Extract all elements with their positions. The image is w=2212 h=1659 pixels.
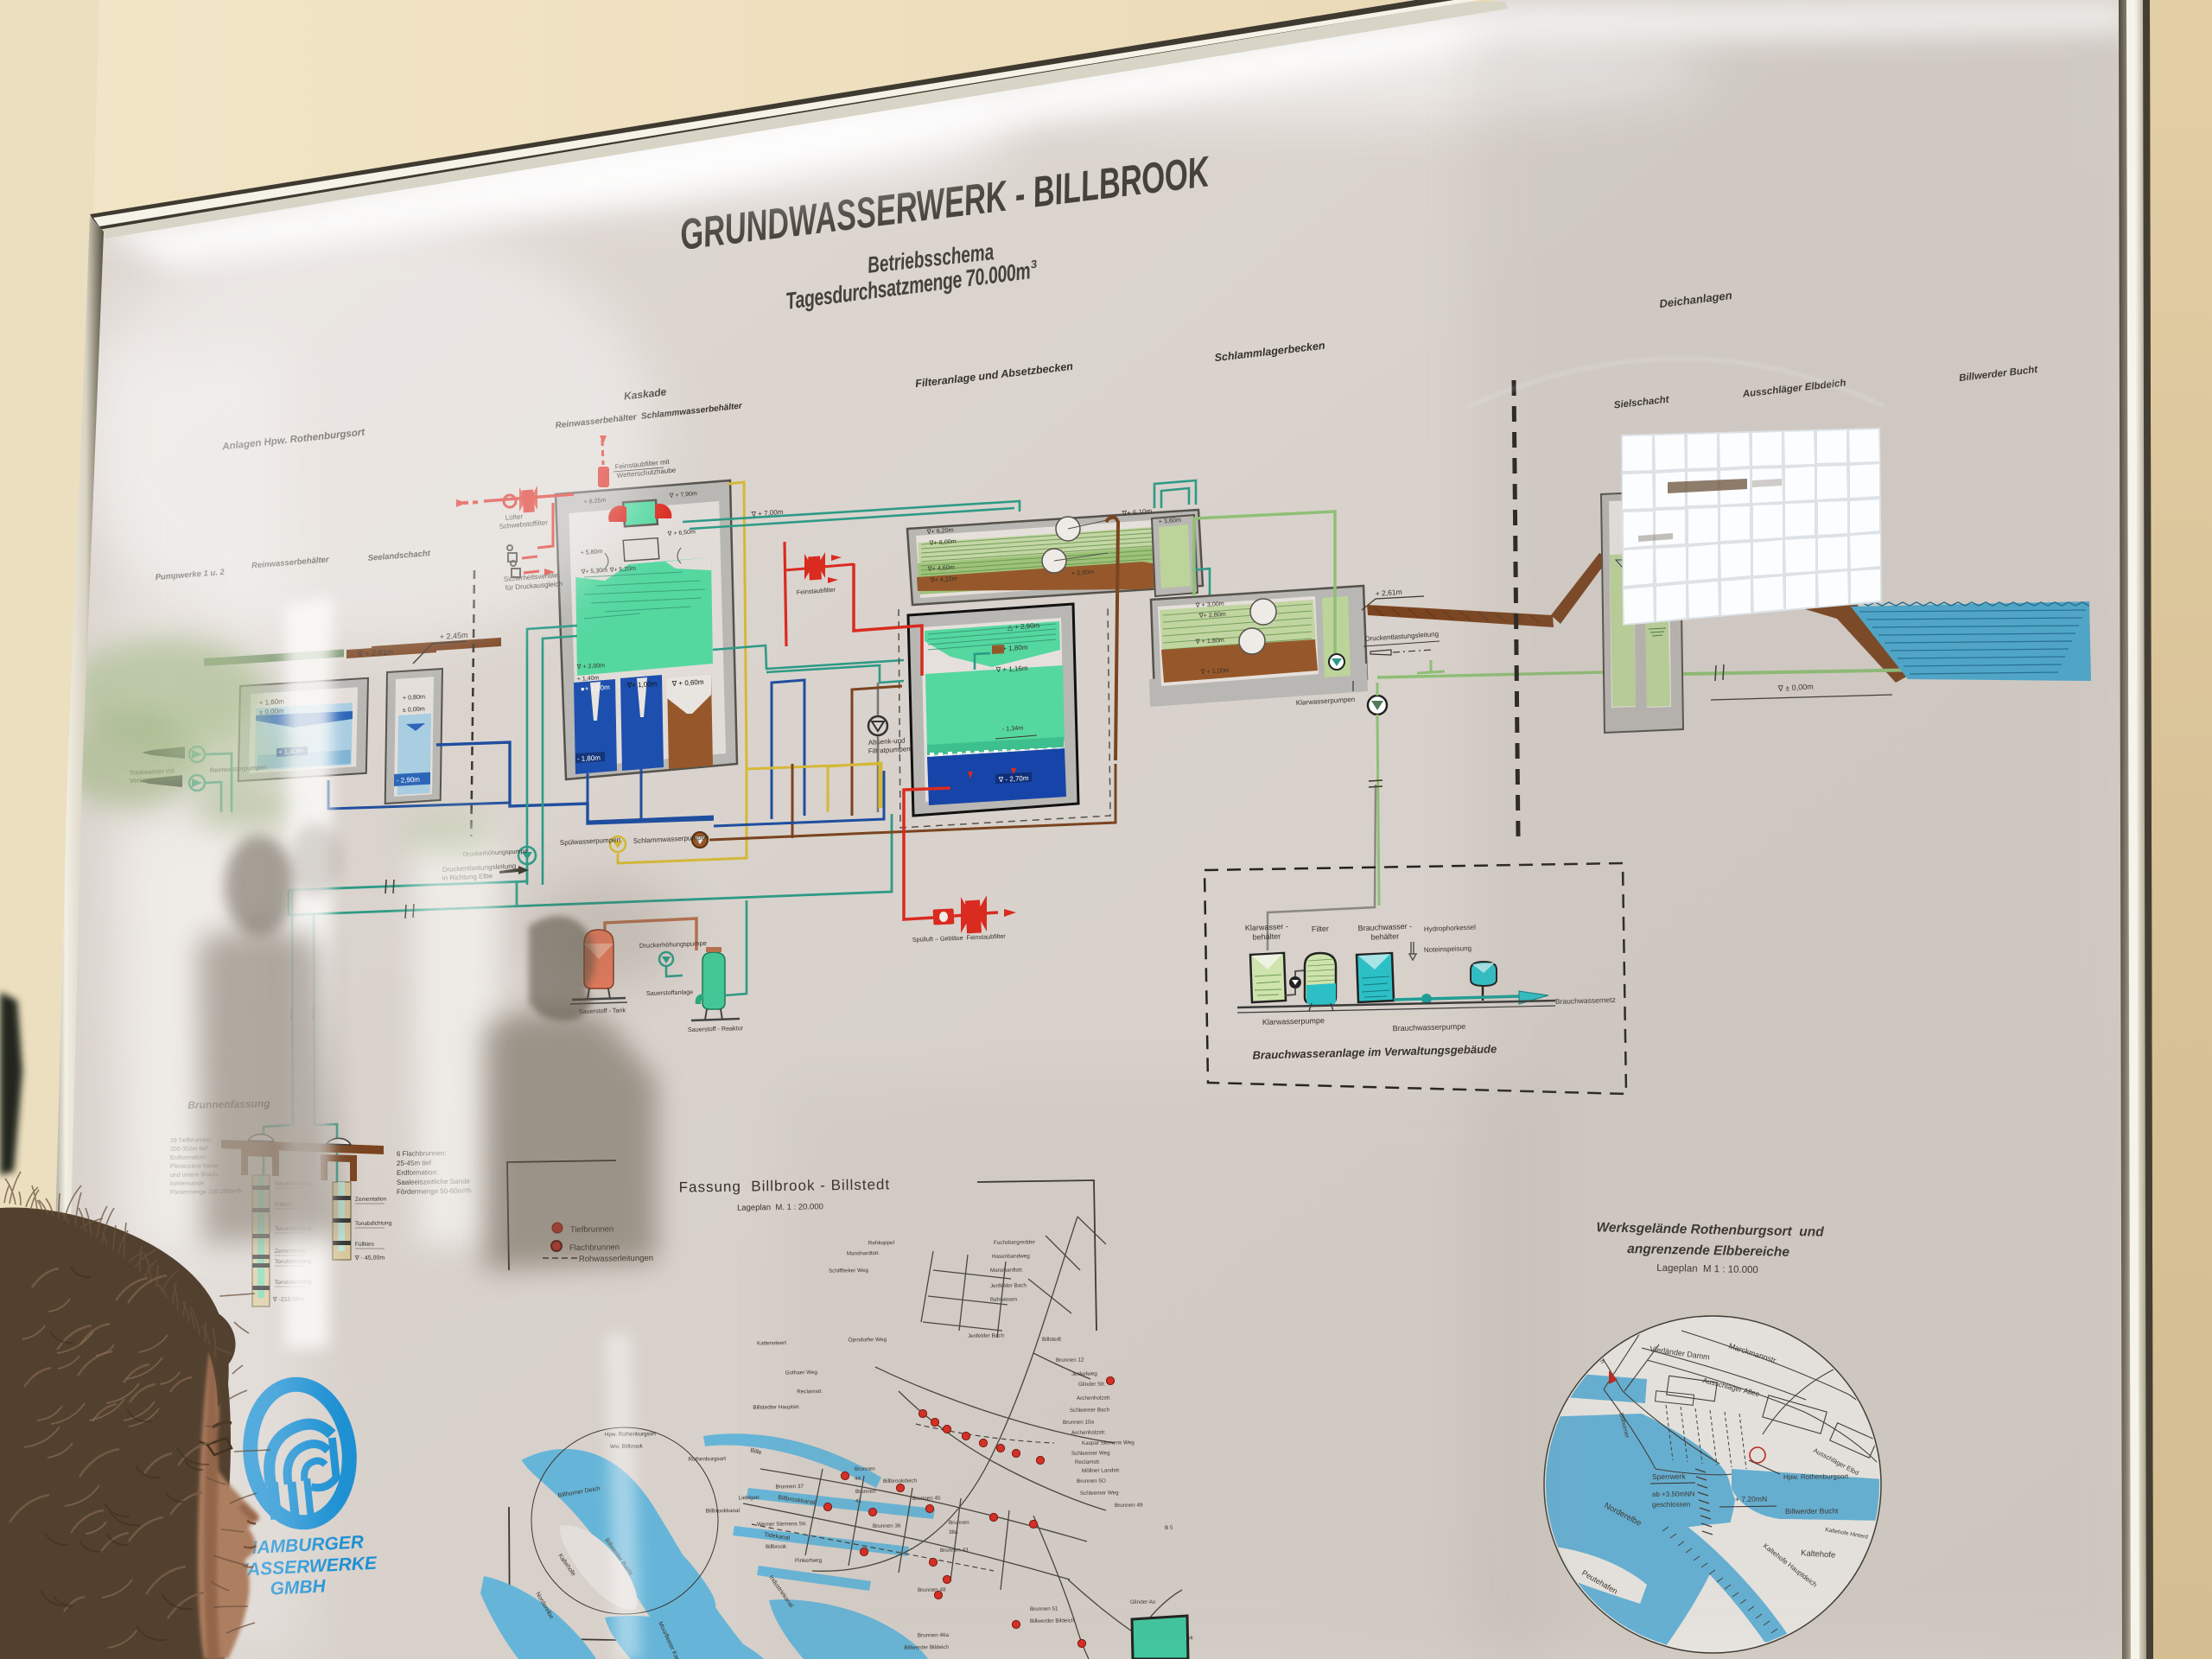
svg-text:- 1,80m: - 1,80m: [577, 753, 601, 763]
svg-text:behälter: behälter: [1370, 931, 1399, 941]
svg-text:- 2,90m: - 2,90m: [397, 775, 421, 785]
svg-text:Zementation: Zementation: [355, 1196, 387, 1203]
svg-text:Billbrookkanal: Billbrookkanal: [706, 1508, 740, 1515]
svg-text:Klarwasserpumpe: Klarwasserpumpe: [1262, 1016, 1325, 1027]
svg-text:Filter: Filter: [1312, 925, 1329, 934]
svg-text:- 1,34m: - 1,34m: [1002, 724, 1024, 733]
svg-text:Liebigstr.: Liebigstr.: [739, 1495, 761, 1501]
svg-text:∇ - 45,00m: ∇ - 45,00m: [354, 1254, 385, 1262]
svg-text:Tonabdichtung: Tonabdichtung: [355, 1220, 392, 1227]
svg-text:± 0,00m: ± 0,00m: [403, 704, 425, 714]
svg-text:Füllkies: Füllkies: [355, 1242, 375, 1248]
svg-text:Klarwasser -: Klarwasser -: [1245, 922, 1288, 932]
svg-text:+ 0,80m: + 0,80m: [403, 692, 426, 702]
svg-text:Sauerstoffanlage: Sauerstoffanlage: [646, 988, 693, 997]
svg-text:Rothenburgsort: Rothenburgsort: [689, 1456, 727, 1463]
svg-text:Sauerstoff - Reaktor: Sauerstoff - Reaktor: [688, 1024, 744, 1033]
svg-text:behälter: behälter: [1252, 931, 1281, 941]
